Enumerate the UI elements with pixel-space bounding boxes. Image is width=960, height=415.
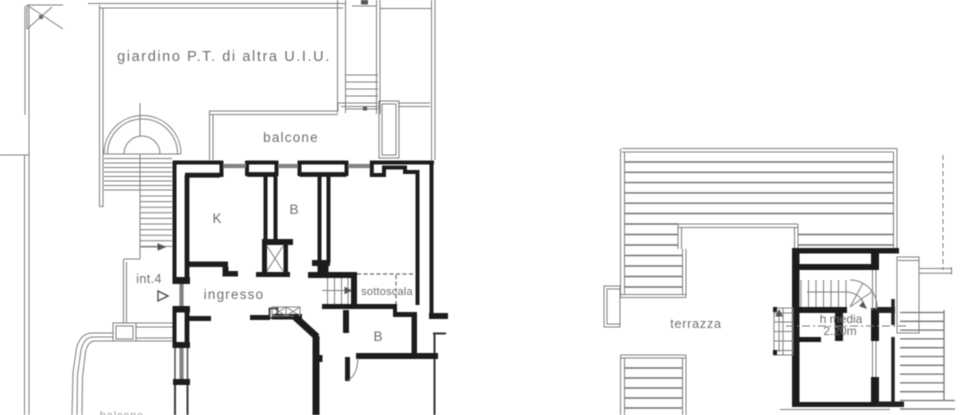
svg-text:giardino P.T. di altra U.I.U.: giardino P.T. di altra U.I.U. [117, 49, 331, 65]
svg-text:balcone: balcone [263, 130, 319, 145]
svg-text:B: B [289, 202, 298, 217]
svg-text:sottoscala: sottoscala [361, 286, 413, 298]
svg-text:int.4: int.4 [136, 272, 162, 286]
svg-text:2.20m: 2.20m [823, 324, 856, 338]
svg-text:K: K [212, 211, 221, 226]
svg-text:balcone: balcone [100, 410, 144, 415]
svg-text:B: B [373, 329, 382, 344]
svg-text:ingresso: ingresso [204, 287, 265, 302]
svg-text:terrazza: terrazza [670, 317, 722, 331]
